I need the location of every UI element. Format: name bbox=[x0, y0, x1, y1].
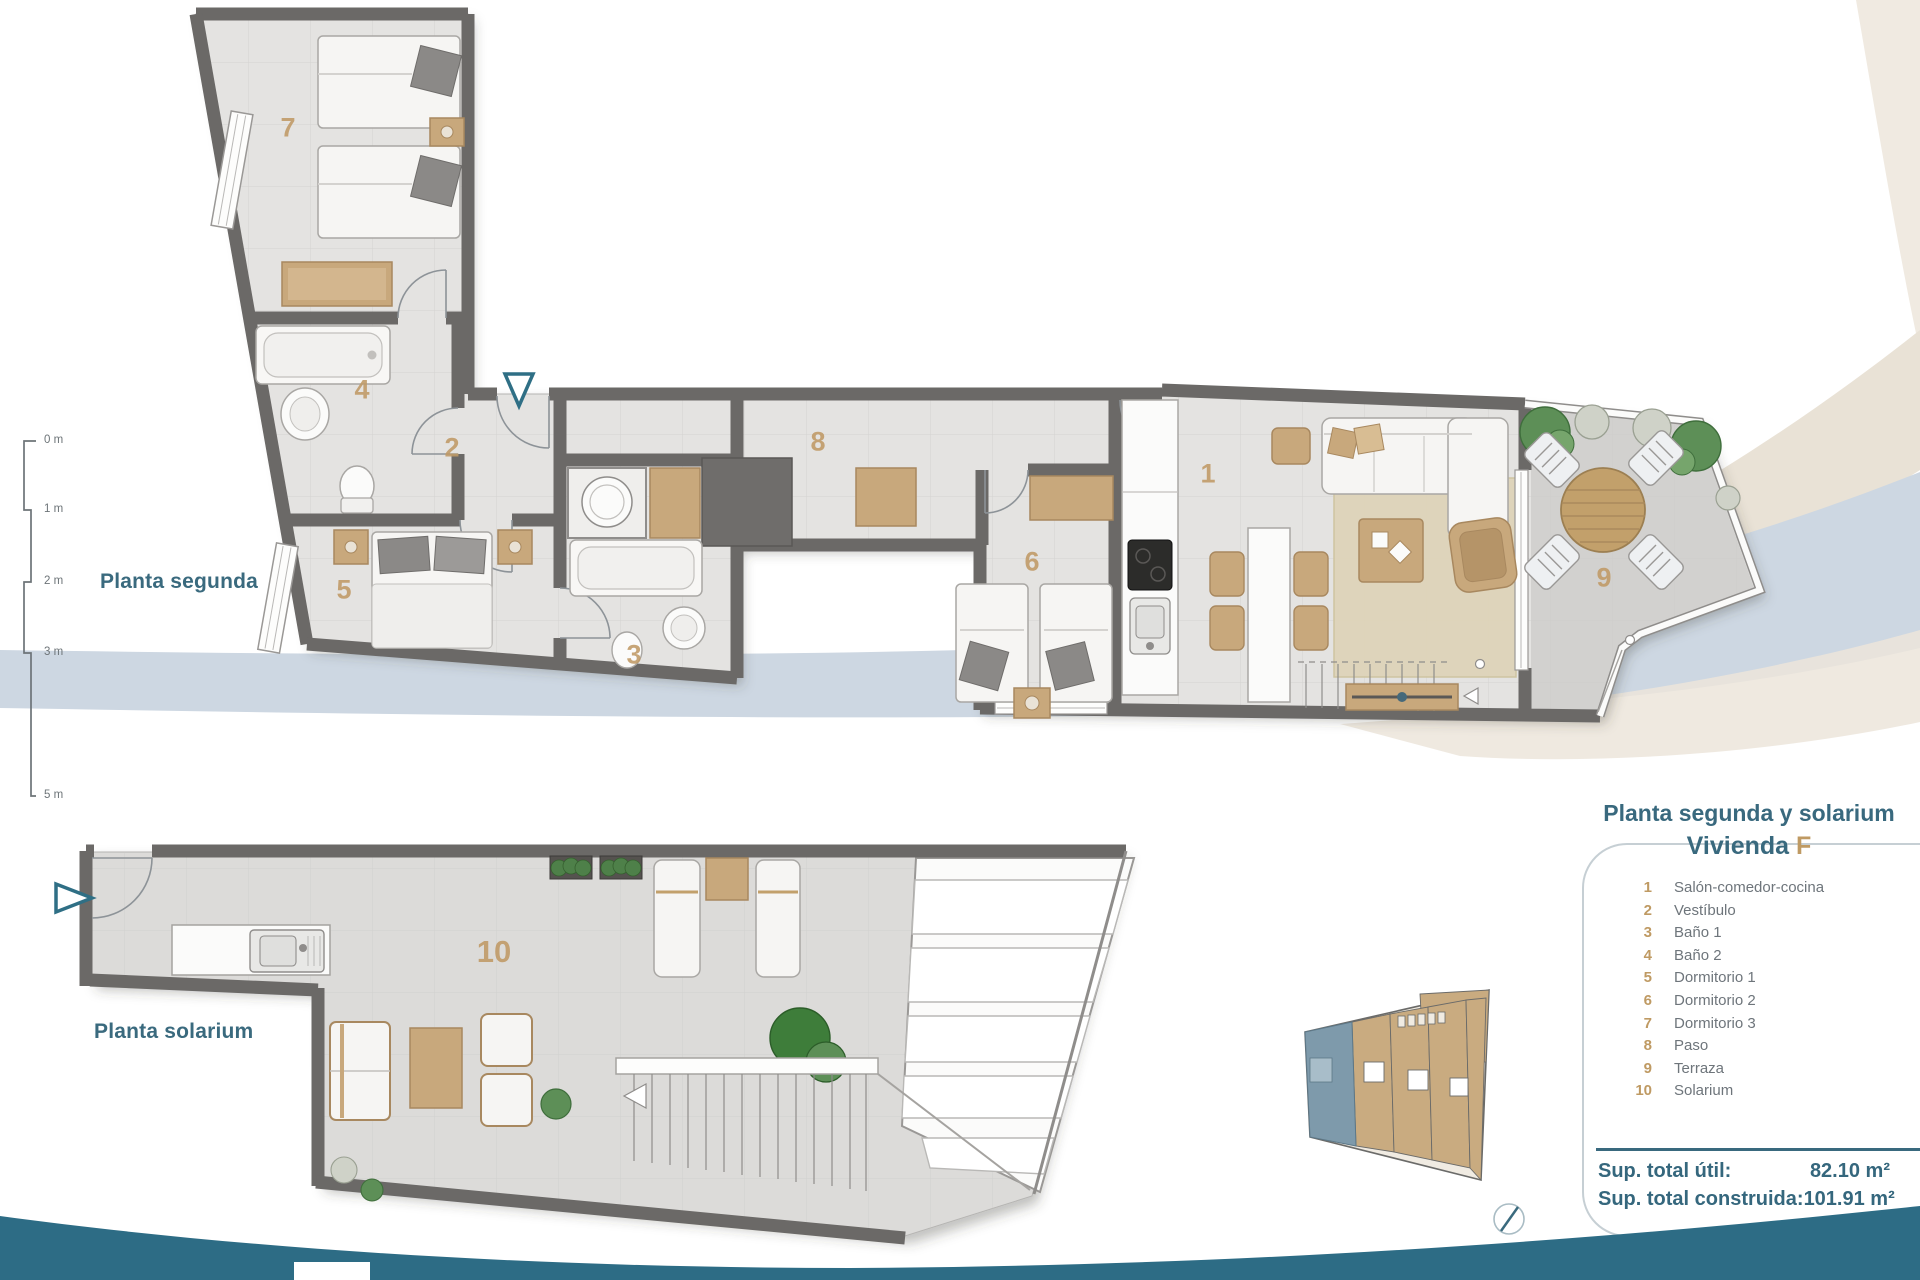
scale-tick-label: 5 m bbox=[44, 789, 63, 801]
legend-item: 10Solarium bbox=[1628, 1082, 1920, 1105]
room-number-4: 4 bbox=[354, 375, 369, 406]
legend-item-number: 4 bbox=[1628, 947, 1652, 964]
second-floor-plan bbox=[196, 14, 1760, 718]
room-number-9: 9 bbox=[1596, 563, 1611, 594]
scale-tick-label: 0 m bbox=[44, 434, 63, 446]
legend-item-label: Dormitorio 3 bbox=[1674, 1015, 1756, 1032]
legend-item-number: 6 bbox=[1628, 992, 1652, 1009]
key-plan-highlighted-unit bbox=[1305, 1022, 1356, 1146]
legend-item-label: Terraza bbox=[1674, 1060, 1724, 1077]
room-number-1: 1 bbox=[1200, 459, 1215, 490]
legend-item-number: 1 bbox=[1628, 879, 1652, 896]
footer-logo-fragment bbox=[294, 1262, 370, 1280]
legend-item: 1Salón-comedor-cocina bbox=[1628, 879, 1920, 902]
total-construida-value: 101.91 m² bbox=[1804, 1188, 1895, 1211]
floor-label-solarium: Planta solarium bbox=[94, 1020, 253, 1044]
total-construida-row: Sup. total construida: 101.91 m² bbox=[1598, 1188, 1890, 1211]
legend-item-label: Dormitorio 2 bbox=[1674, 992, 1756, 1009]
pergola-slats bbox=[902, 858, 1134, 1192]
total-util-row: Sup. total útil: 82.10 m² bbox=[1598, 1160, 1890, 1183]
legend-item-label: Paso bbox=[1674, 1037, 1708, 1054]
totals-divider bbox=[1596, 1148, 1920, 1151]
legend-item-number: 3 bbox=[1628, 924, 1652, 941]
scale-tick-label: 1 m bbox=[44, 503, 63, 515]
legend-item: 7Dormitorio 3 bbox=[1628, 1015, 1920, 1038]
room-number-6: 6 bbox=[1024, 547, 1039, 578]
room-number-8: 8 bbox=[810, 427, 825, 458]
legend-item-number: 9 bbox=[1628, 1060, 1652, 1077]
round-table-icon bbox=[1561, 468, 1645, 552]
legend-item: 6Dormitorio 2 bbox=[1628, 992, 1920, 1015]
page-title: Planta segunda y solarium bbox=[1565, 800, 1920, 827]
legend-list: 1Salón-comedor-cocina2Vestíbulo3Baño 14B… bbox=[1628, 879, 1920, 1105]
legend-item-number: 7 bbox=[1628, 1015, 1652, 1032]
legend-item-label: Salón-comedor-cocina bbox=[1674, 879, 1824, 896]
plan-header: Planta segunda y solarium ViviendaF bbox=[1565, 800, 1920, 861]
legend-item: 8Paso bbox=[1628, 1037, 1920, 1060]
legend-item-label: Solarium bbox=[1674, 1082, 1733, 1099]
legend-item: 4Baño 2 bbox=[1628, 947, 1920, 970]
unit-letter: F bbox=[1796, 832, 1811, 860]
legend-item-number: 10 bbox=[1628, 1082, 1652, 1099]
key-plan bbox=[1305, 990, 1489, 1180]
area-totals: Sup. total útil: 82.10 m² Sup. total con… bbox=[1598, 1160, 1890, 1216]
scale-tick-label: 3 m bbox=[44, 646, 63, 658]
solarium-plan bbox=[56, 851, 1134, 1238]
total-construida-label: Sup. total construida: bbox=[1598, 1188, 1804, 1211]
compass-icon bbox=[1494, 1204, 1524, 1234]
legend-item: 2Vestíbulo bbox=[1628, 902, 1920, 925]
legend-item: 9Terraza bbox=[1628, 1060, 1920, 1083]
floorplan-page: 0 m 1 m 2 m 3 m 5 m Planta segunda Plant… bbox=[0, 0, 1920, 1280]
floor-label-segunda: Planta segunda bbox=[100, 570, 258, 594]
room-number-2: 2 bbox=[444, 433, 459, 464]
total-util-label: Sup. total útil: bbox=[1598, 1160, 1731, 1183]
legend-item-label: Baño 2 bbox=[1674, 947, 1722, 964]
scale-tick-label: 2 m bbox=[44, 575, 63, 587]
legend-item-label: Baño 1 bbox=[1674, 924, 1722, 941]
room-number-5: 5 bbox=[336, 575, 351, 606]
room-number-3: 3 bbox=[626, 640, 641, 671]
unit-word: Vivienda bbox=[1687, 832, 1789, 860]
total-util-value: 82.10 m² bbox=[1810, 1160, 1890, 1183]
legend-item-number: 8 bbox=[1628, 1037, 1652, 1054]
kitchen-counter bbox=[1122, 400, 1178, 695]
room-number-7: 7 bbox=[280, 113, 295, 144]
room-number-10: 10 bbox=[477, 934, 511, 970]
legend-item-number: 5 bbox=[1628, 969, 1652, 986]
scale-bar bbox=[24, 441, 36, 796]
legend-item: 5Dormitorio 1 bbox=[1628, 969, 1920, 992]
solarium-counter bbox=[172, 925, 330, 975]
legend-item-number: 2 bbox=[1628, 902, 1652, 919]
legend-item: 3Baño 1 bbox=[1628, 924, 1920, 947]
unit-title: ViviendaF bbox=[1565, 832, 1920, 861]
legend-item-label: Vestíbulo bbox=[1674, 902, 1736, 919]
legend-item-label: Dormitorio 1 bbox=[1674, 969, 1756, 986]
